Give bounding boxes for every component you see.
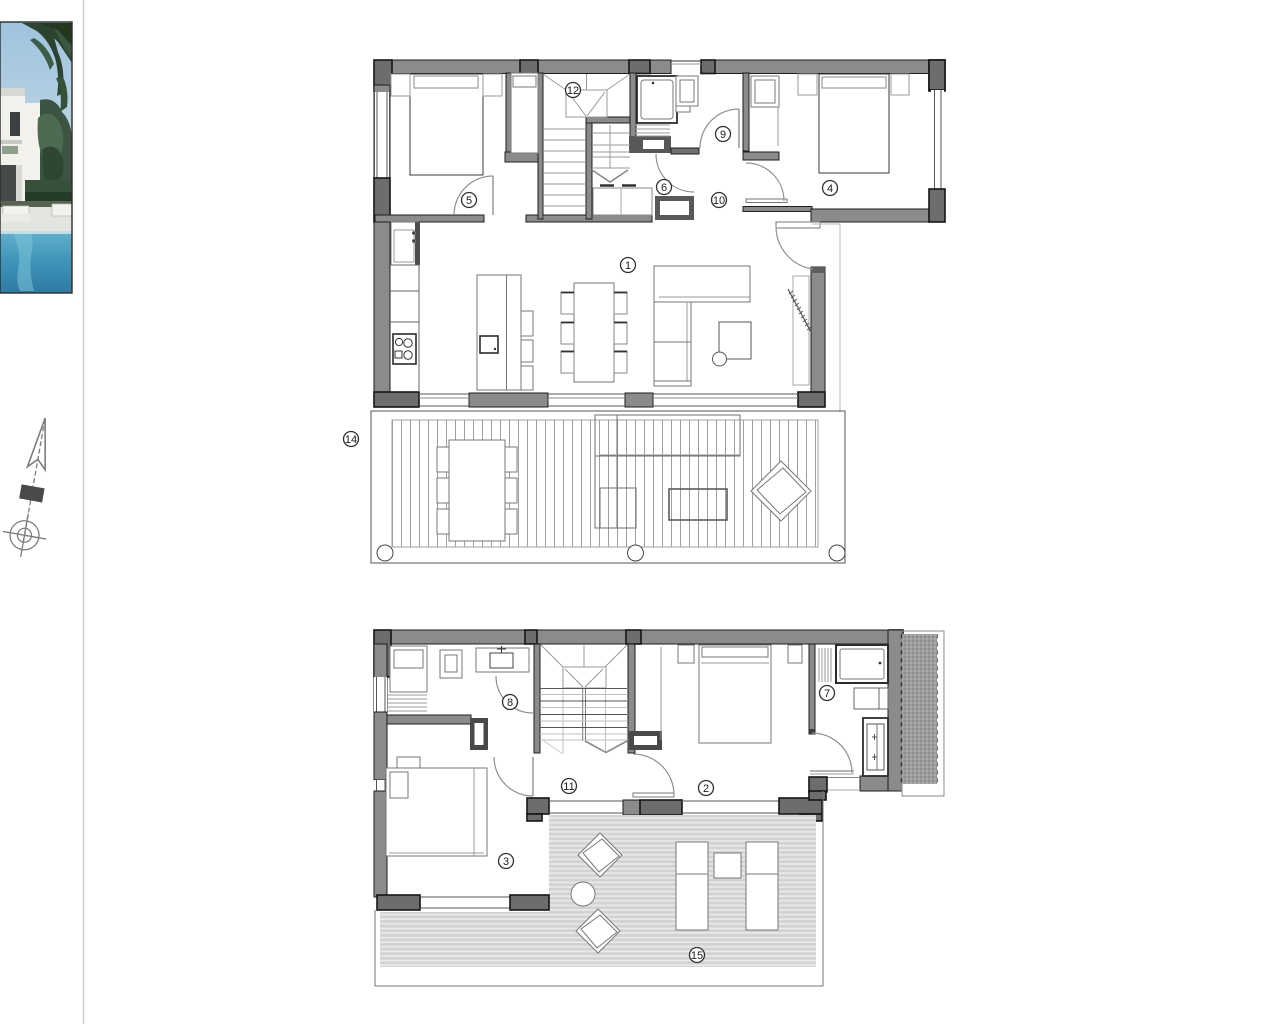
svg-text:6: 6 [661, 182, 667, 194]
svg-text:1: 1 [625, 260, 631, 272]
svg-text:14: 14 [345, 434, 357, 446]
svg-text:12: 12 [567, 85, 579, 97]
svg-text:10: 10 [713, 195, 725, 207]
svg-text:8: 8 [507, 697, 513, 709]
svg-text:4: 4 [827, 183, 833, 195]
svg-text:5: 5 [466, 195, 472, 207]
svg-text:7: 7 [824, 688, 830, 700]
svg-text:15: 15 [691, 950, 703, 962]
svg-text:11: 11 [563, 781, 574, 793]
svg-text:2: 2 [703, 783, 709, 795]
svg-text:3: 3 [503, 856, 509, 868]
svg-text:9: 9 [720, 129, 726, 141]
